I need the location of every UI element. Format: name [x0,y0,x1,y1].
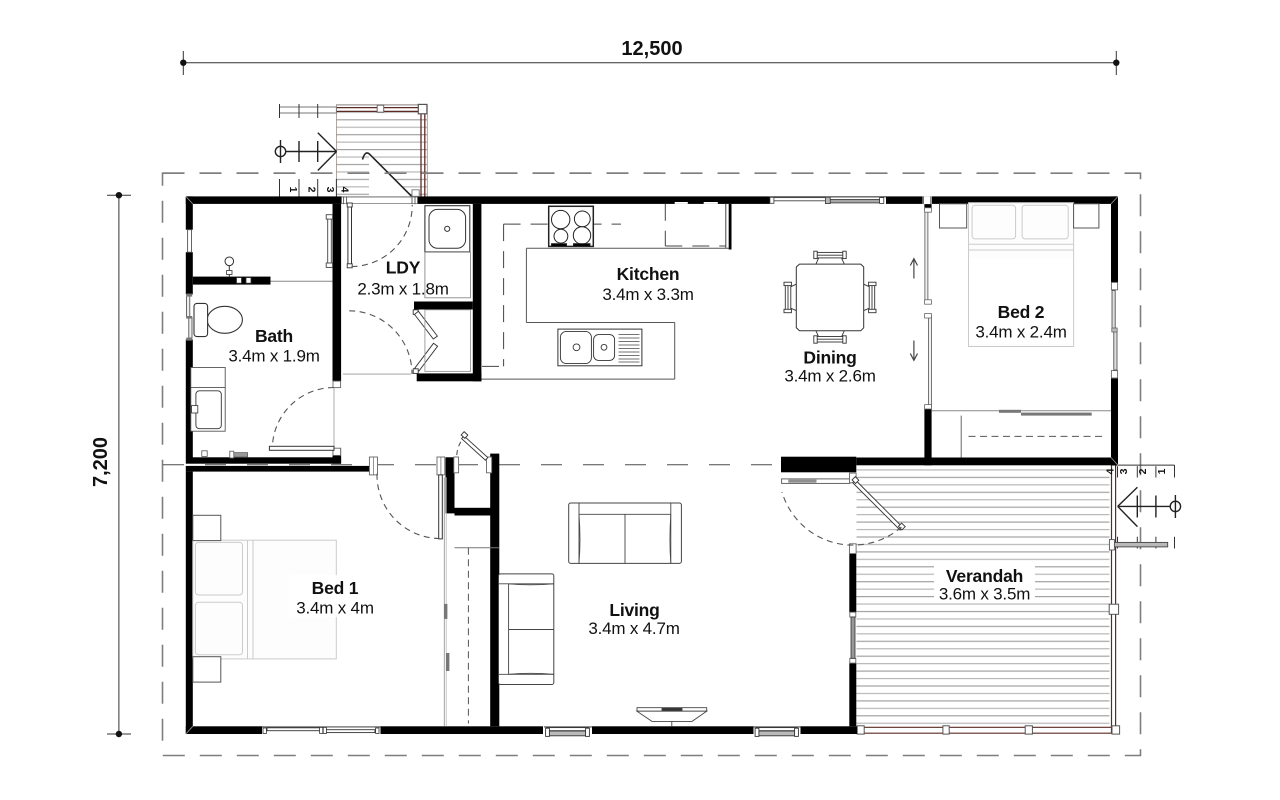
svg-text:2: 2 [1137,468,1149,474]
svg-text:3.4m x 1.9m: 3.4m x 1.9m [228,347,319,366]
svg-text:Bath: Bath [255,326,293,346]
svg-text:Bed 1: Bed 1 [312,578,359,598]
svg-text:4: 4 [339,187,351,193]
svg-text:Living: Living [609,600,659,620]
svg-text:3: 3 [1118,468,1130,474]
svg-text:3: 3 [324,187,336,193]
svg-text:1: 1 [287,187,299,193]
svg-text:3.6m x 3.5m: 3.6m x 3.5m [939,585,1030,604]
svg-text:4: 4 [1105,468,1117,474]
svg-text:LDY: LDY [386,258,421,278]
svg-text:3.4m x 2.6m: 3.4m x 2.6m [784,367,875,386]
svg-text:Kitchen: Kitchen [617,264,680,284]
svg-text:Verandah: Verandah [946,566,1023,586]
svg-text:1: 1 [1156,468,1168,474]
svg-text:2.3m x 1.8m: 2.3m x 1.8m [357,280,448,299]
svg-text:Dining: Dining [803,348,856,368]
svg-text:3.4m x 3.3m: 3.4m x 3.3m [602,285,693,304]
svg-text:2: 2 [306,187,318,193]
svg-text:3.4m x 4m: 3.4m x 4m [296,598,374,617]
svg-text:12,500: 12,500 [621,38,682,60]
svg-text:7,200: 7,200 [90,437,112,487]
svg-text:3.4m x 4.7m: 3.4m x 4.7m [588,619,679,638]
svg-text:Bed 2: Bed 2 [998,302,1045,322]
svg-text:3.4m x 2.4m: 3.4m x 2.4m [975,323,1066,342]
